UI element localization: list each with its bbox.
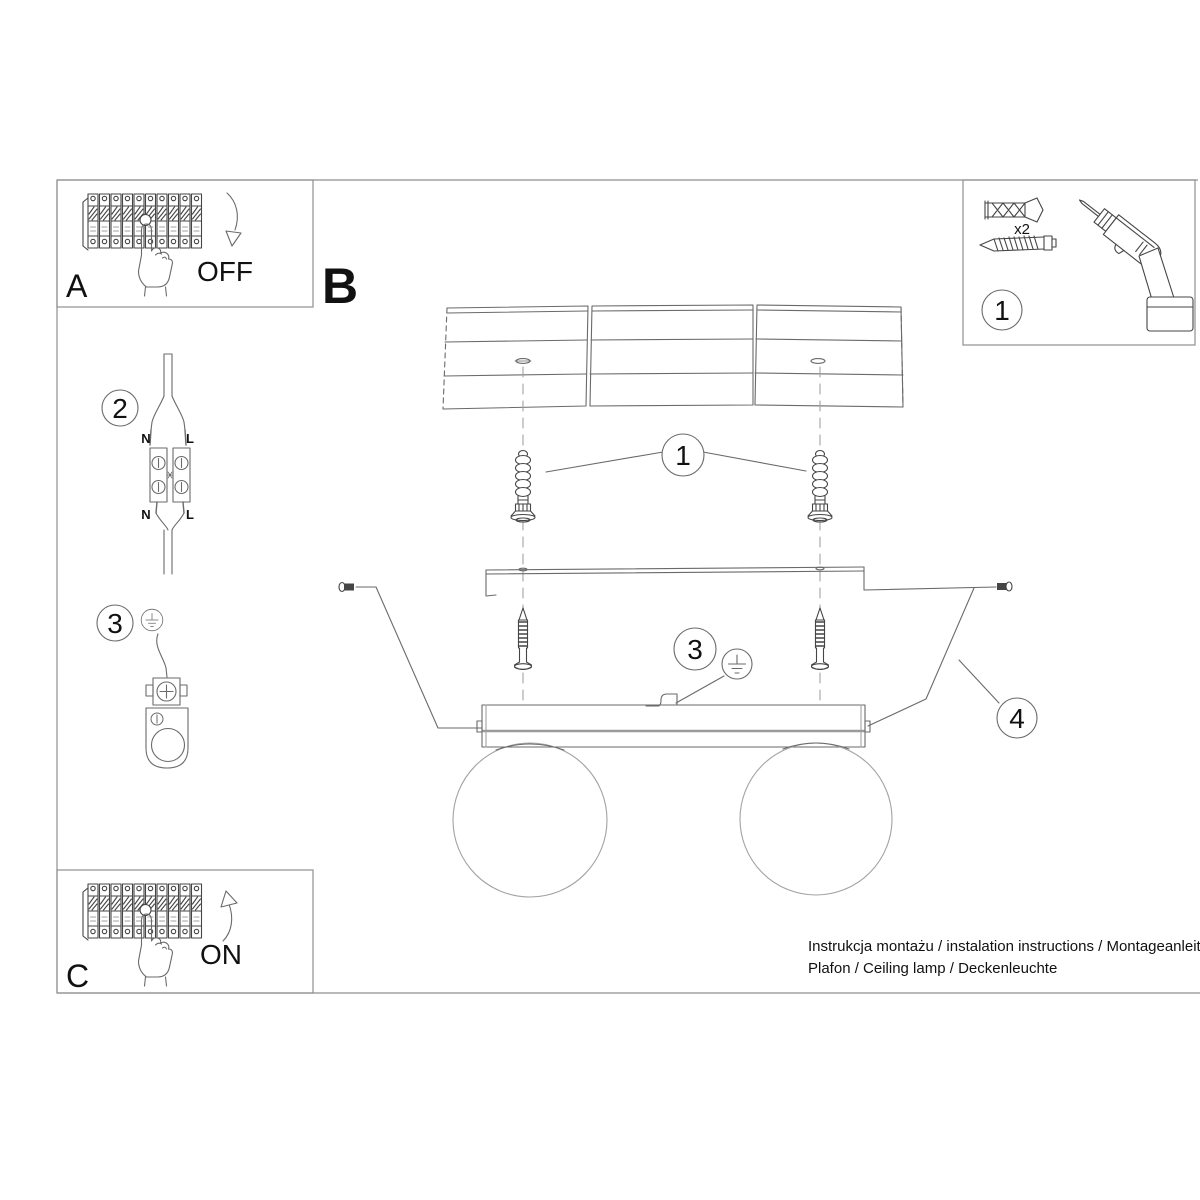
lamp-cable: [156, 502, 184, 574]
callout-4: 4: [959, 660, 1037, 738]
glass-globes: [453, 743, 892, 897]
section-a: A OFF: [66, 193, 253, 304]
parts-step-number: 1: [994, 295, 1010, 326]
section-c: C ON: [66, 884, 242, 994]
section-c-label: C: [66, 958, 89, 994]
step-2-wiring-diagram: 2 N L N L: [102, 354, 194, 574]
mounting-bracket: [486, 567, 996, 596]
ceiling-hole-right: [811, 359, 825, 364]
lamp-canopy: [477, 694, 870, 747]
ground-symbol-icon-b: [722, 649, 752, 679]
terminal-block: [150, 448, 190, 502]
footer-line-1: Instrukcja montażu / instalation instruc…: [808, 938, 1200, 955]
ground-terminal: [146, 678, 187, 705]
wire-label-n-top: N: [141, 431, 150, 446]
terminal-mark: [167, 472, 173, 478]
anchor-quantity-label: x2: [1014, 221, 1030, 238]
frame: [57, 180, 1200, 993]
ceiling-panels: [443, 305, 903, 409]
section-a-label: A: [66, 268, 88, 304]
callout-4-number: 4: [1009, 703, 1025, 734]
instruction-sheet: A OFF 2 N L N L 3: [0, 0, 1200, 1200]
section-b: B 1: [322, 258, 1037, 897]
ground-hook: [646, 694, 677, 706]
off-label: OFF: [197, 256, 253, 287]
on-label: ON: [200, 939, 242, 970]
callout-1: 1: [546, 434, 806, 476]
drill-icon: [1068, 190, 1193, 331]
mounting-screw-right: [812, 608, 829, 670]
wire-label-l-bottom: L: [186, 507, 194, 522]
globe-left: [453, 743, 607, 897]
wire-label-l-top: L: [186, 431, 194, 446]
mounting-screw-left: [515, 608, 532, 670]
mounting-plate: [146, 708, 188, 768]
step-3-number: 3: [107, 608, 123, 639]
step-2-number: 2: [112, 393, 128, 424]
section-b-label: B: [322, 258, 358, 314]
installation-diagram: A OFF 2 N L N L 3: [0, 0, 1200, 1200]
callout-3-number: 3: [687, 634, 703, 665]
breaker-panel-illustration-c: [83, 884, 202, 940]
parts-box: x2 1: [980, 190, 1193, 331]
globe-right: [740, 743, 892, 895]
ground-symbol-icon: [141, 609, 163, 631]
arrow-down-icon: [226, 193, 241, 246]
screw-icon: [980, 236, 1056, 251]
wall-anchor-right: [808, 450, 832, 522]
callout-3: 3: [674, 628, 752, 703]
supply-cable: [150, 354, 186, 445]
footer: Instrukcja montażu / instalation instruc…: [808, 938, 1200, 977]
side-bolt-left: [339, 583, 482, 729]
breaker-panel-illustration: [83, 194, 202, 250]
arrow-up-icon: [221, 891, 237, 941]
wire-label-n-bottom: N: [141, 507, 150, 522]
side-bolt-right: [868, 582, 1012, 726]
wall-plug-icon: [985, 198, 1043, 222]
callout-1-number: 1: [675, 440, 691, 471]
wall-anchor-left: [511, 450, 535, 522]
step-3-ground-diagram: 3: [97, 605, 188, 768]
footer-line-2: Plafon / Ceiling lamp / Deckenleuchte: [808, 960, 1057, 977]
ground-wire: [157, 634, 167, 677]
